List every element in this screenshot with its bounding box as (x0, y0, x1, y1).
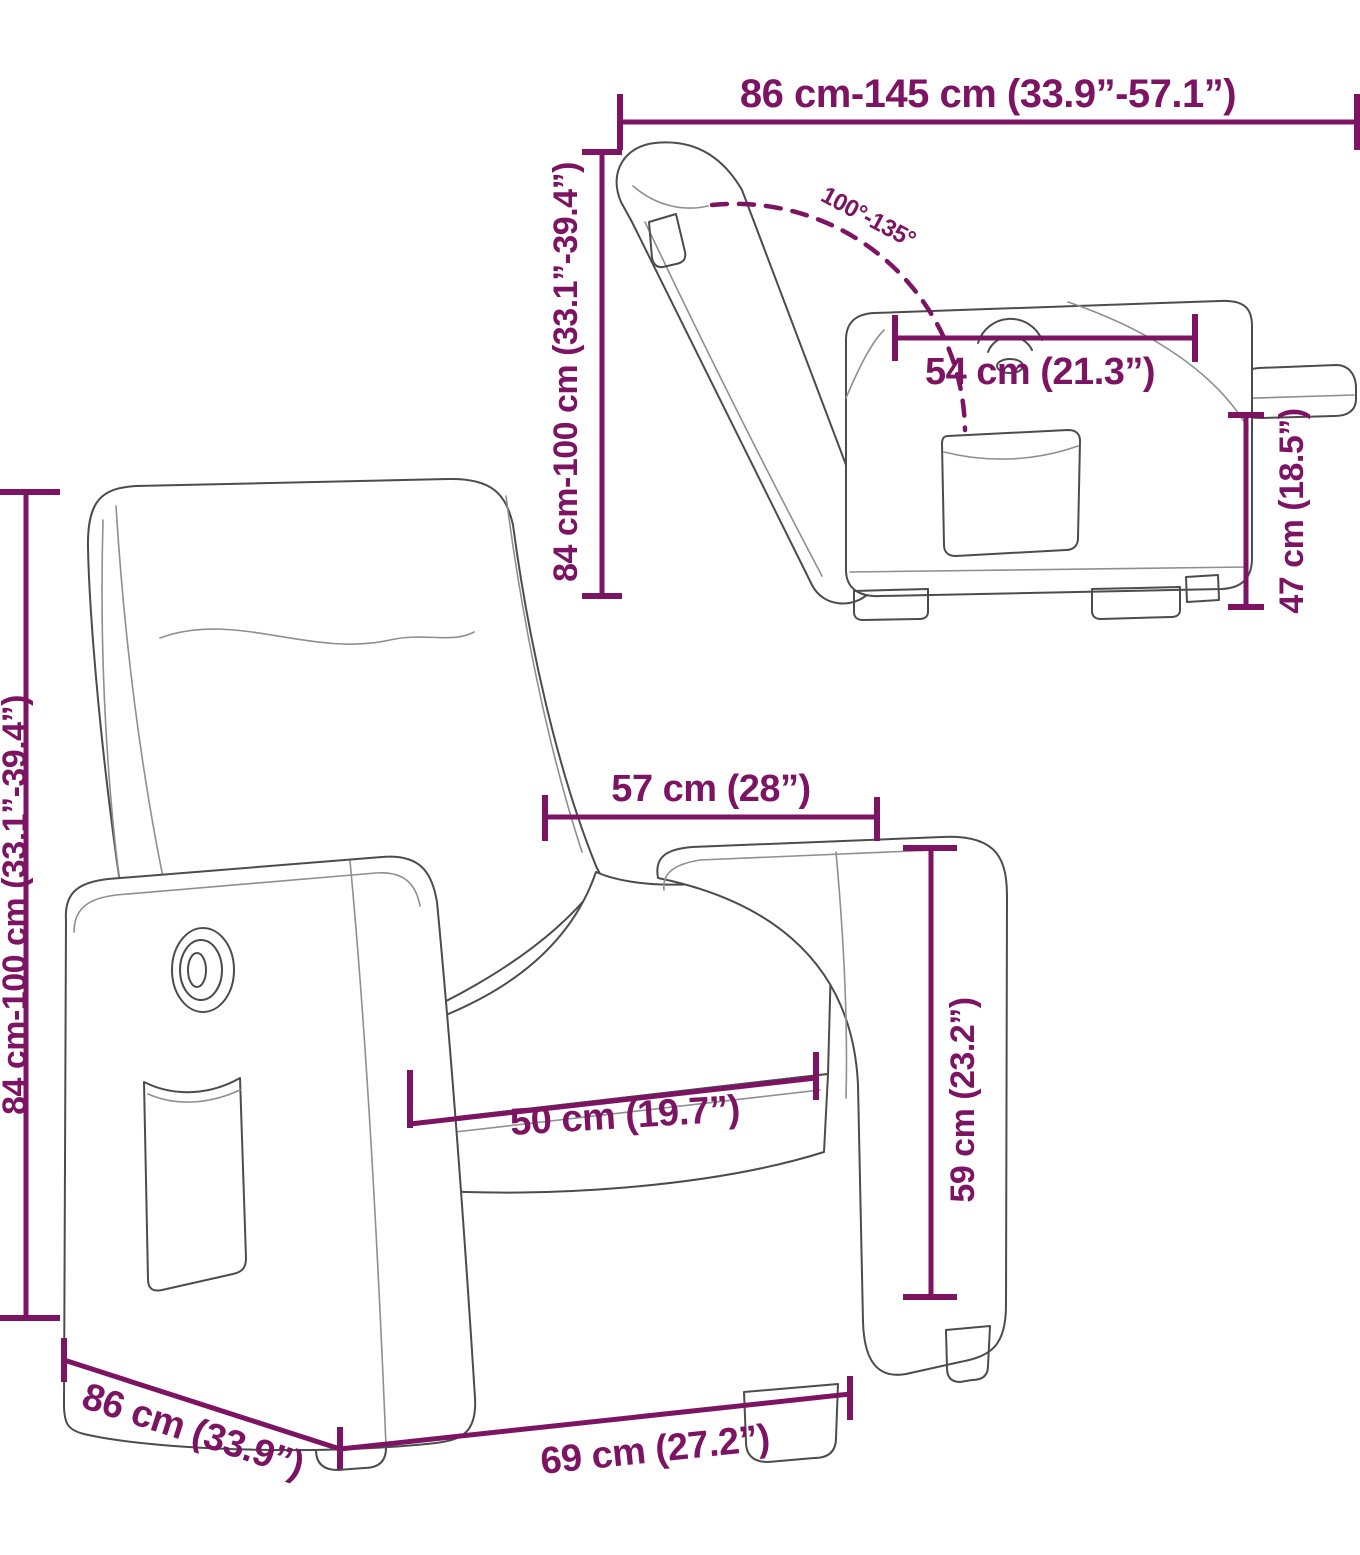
dim-label-armrest-span: 57 cm (28”) (611, 770, 810, 808)
front-view-drawing (64, 479, 1007, 1470)
dim-side-height (582, 152, 622, 596)
dim-label-front-height: 84 cm-100 cm (33.1”-39.4”) (0, 695, 32, 1115)
dim-label-side-seat-depth: 54 cm (21.3”) (925, 353, 1155, 391)
dim-label-seat-height: 59 cm (23.2”) (946, 997, 980, 1202)
dim-label-top-extension: 86 cm-145 cm (33.9”-57.1”) (740, 74, 1236, 114)
dimension-diagram: 86 cm-145 cm (33.9”-57.1”) 84 cm-100 cm … (0, 0, 1360, 1555)
front-armrest-left (64, 857, 475, 1450)
dim-label-footrest-height: 47 cm (18.5”) (1275, 408, 1309, 613)
dim-label-side-height: 84 cm-100 cm (33.1”-39.4”) (549, 162, 583, 582)
